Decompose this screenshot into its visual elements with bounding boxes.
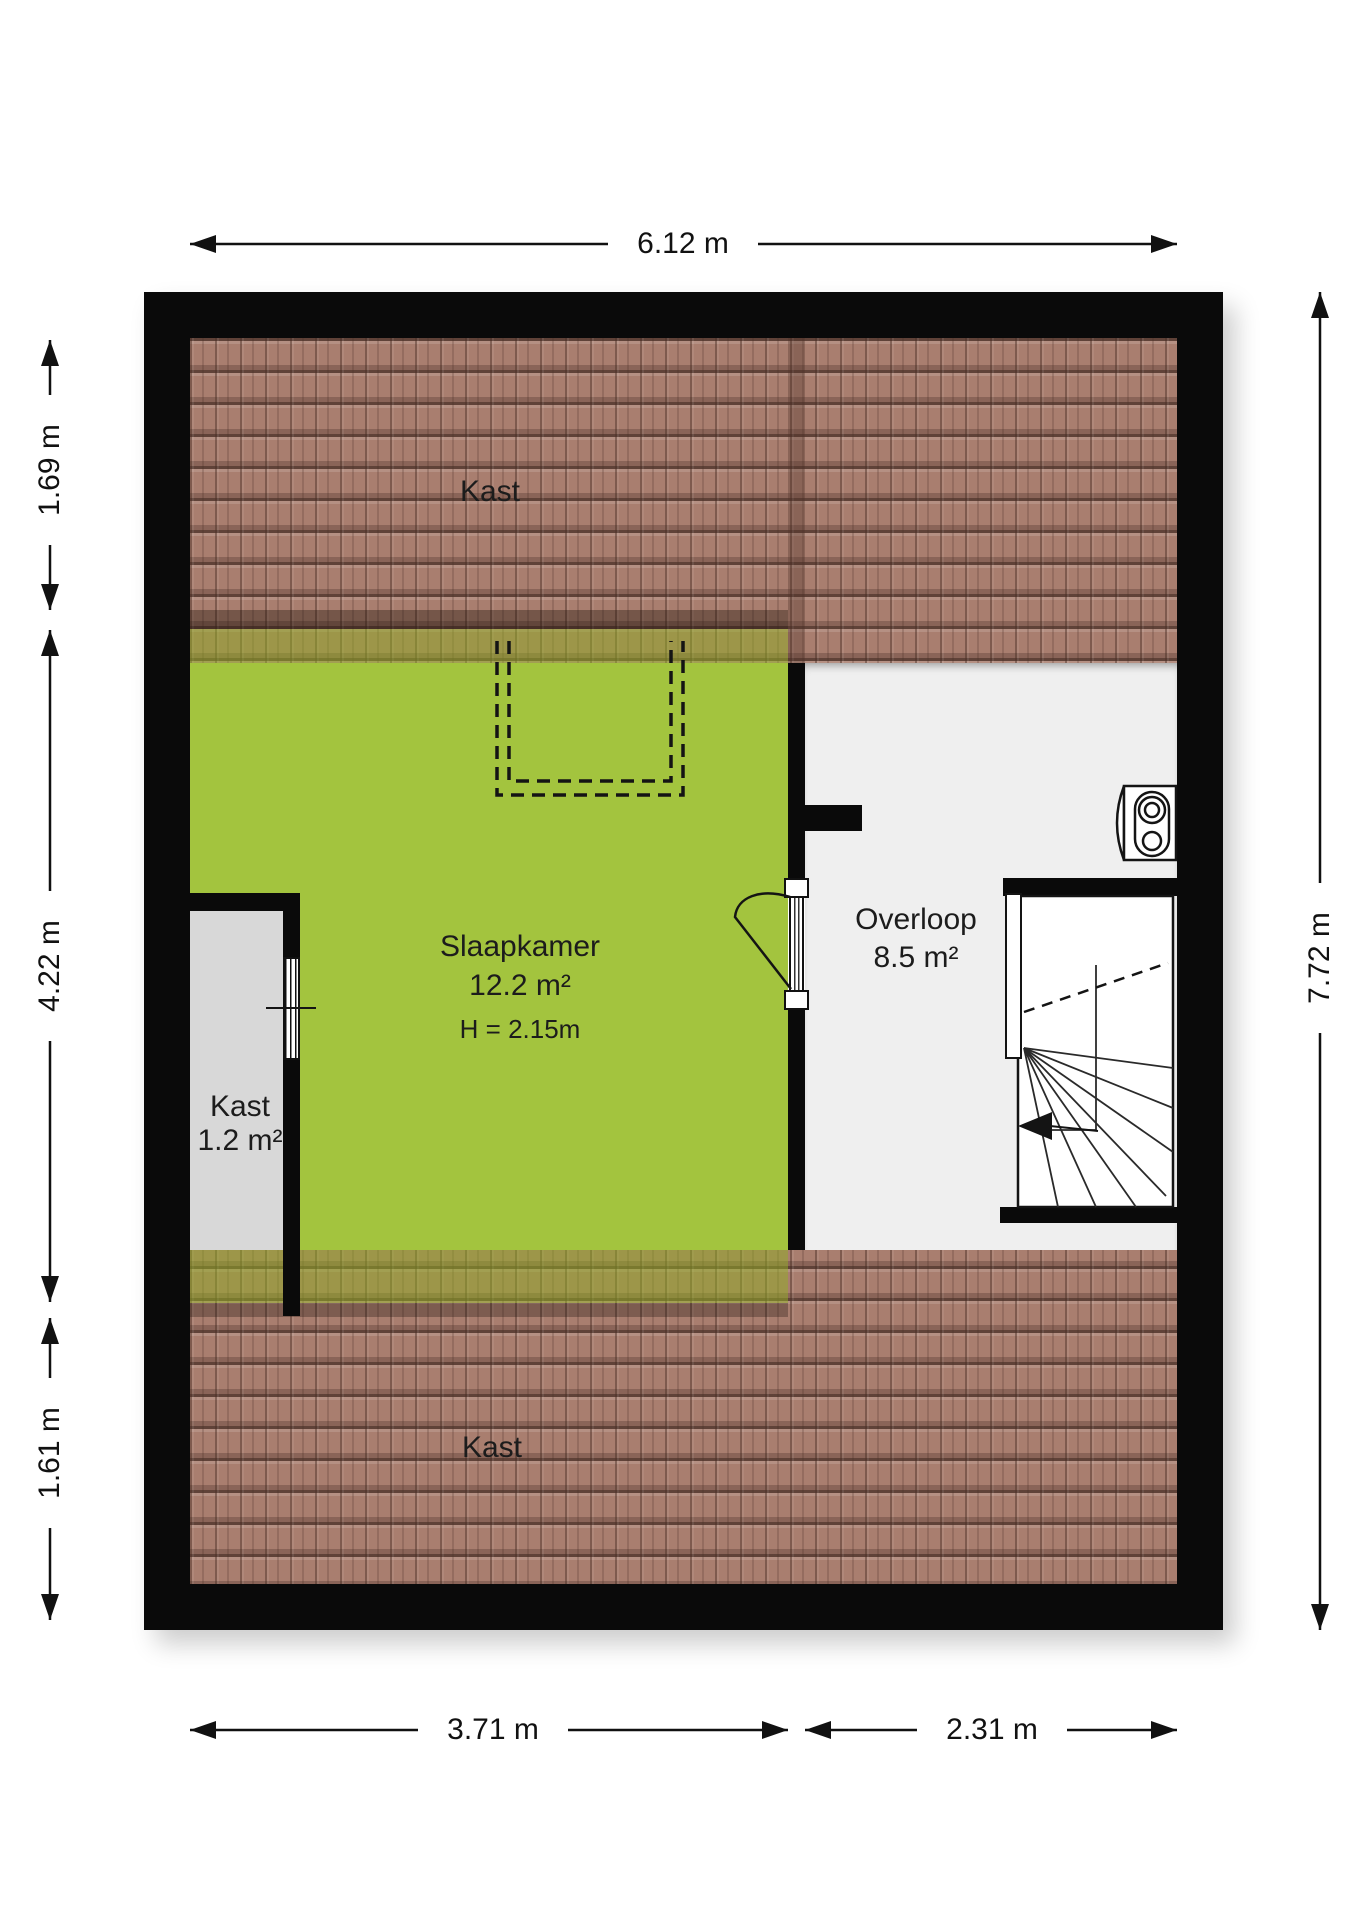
overloop-floor [805,663,1177,1250]
door-frame-bottom [784,990,809,1010]
door-leaf [789,896,804,992]
slaapkamer-area-label: 12.2 m² [469,969,571,1003]
roof-overlap-band-top [190,629,788,663]
dimension-top-width: 6.12 m [608,225,758,263]
wall-divider-upper [788,663,805,878]
dimension-right-height: 7.72 m [1301,883,1339,1033]
kast-closet-area-label: 1.2 m² [197,1124,282,1158]
roof-overlap-band-bottom [190,1250,788,1303]
dimension-bottom-left: 3.71 m [418,1711,568,1749]
wall-stairs-bottom [1000,1207,1177,1223]
overloop-label: Overloop [855,903,977,937]
dimension-bottom-right: 2.31 m [917,1711,1067,1749]
wall-divider-lower [788,1010,805,1250]
closet-window [283,957,300,1060]
slaapkamer-height-label: H = 2.15m [460,1012,581,1046]
wall-stub [788,805,862,831]
wall-closet-top [190,893,300,911]
dimension-left-bottom: 1.61 m [31,1378,69,1528]
kast-closet-floor [190,911,283,1250]
roof-edge-shadow-bottom [190,1303,788,1317]
kast-bottom-label: Kast [462,1431,522,1465]
slaapkamer-label: Slaapkamer [440,930,600,964]
door-frame-top [784,878,809,898]
dimension-left-top: 1.69 m [31,395,69,545]
roof-edge-shadow-top [190,610,788,629]
dimension-left-middle: 4.22 m [31,891,69,1041]
kast-top-label: Kast [460,475,520,509]
page-root: { "plan": { "rooms": { "kast_top": { "la… [0,0,1358,1920]
wall-stairs-top [1003,878,1177,896]
roof-seam-line [788,338,805,664]
overloop-area-label: 8.5 m² [873,941,958,975]
wall-closet-right-upper [283,911,300,957]
wall-closet-right-lower [283,1060,300,1316]
kast-closet-label: Kast [210,1090,270,1124]
